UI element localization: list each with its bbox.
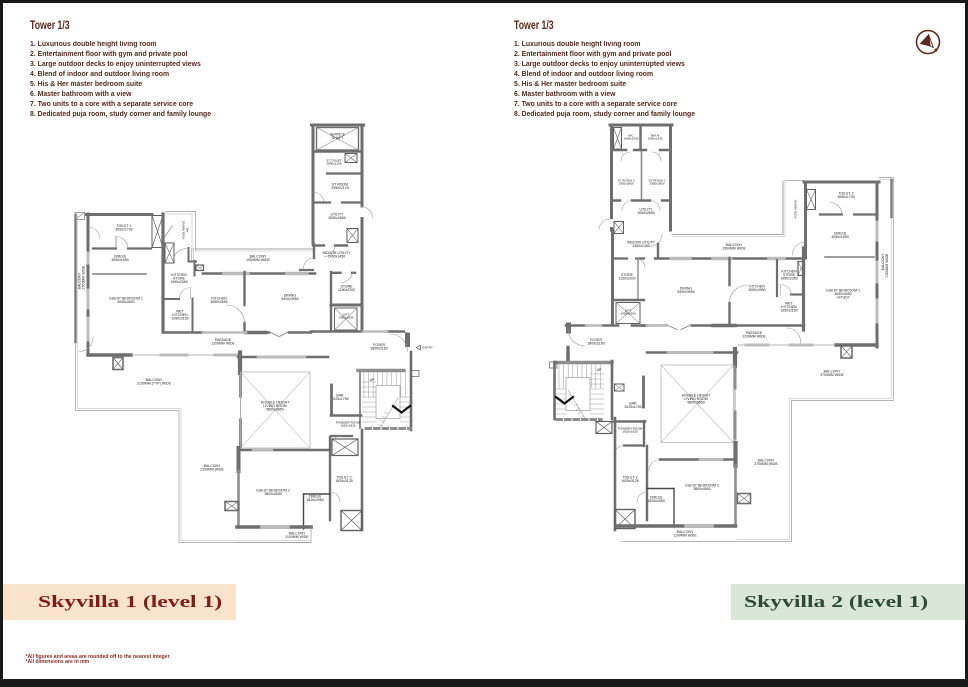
svg-text:UP: UP (597, 368, 603, 372)
svg-text:TOILET 21625x3125: TOILET 21625x3125 (621, 476, 638, 483)
svg-text:DRESS1825x2950: DRESS1825x2950 (647, 496, 664, 503)
svg-text:BALCONY2150MM WIDE: BALCONY2150MM WIDE (200, 464, 224, 471)
svg-text:DRESS4050x1950: DRESS4050x1950 (831, 232, 848, 239)
svg-text:WC1500x1425: WC1500x1425 (623, 134, 639, 141)
svg-text:BALCONY1500MM WIDE: BALCONY1500MM WIDE (246, 255, 270, 262)
svg-text:FOYER2800x2150: FOYER2800x2150 (587, 338, 604, 345)
svg-text:TOILET 23050x1700: TOILET 23050x1700 (837, 192, 854, 199)
svg-text:BALCONY1500MM WIDE: BALCONY1500MM WIDE (881, 253, 889, 277)
svg-text:DRESS1825x2950: DRESS1825x2950 (306, 495, 323, 502)
svg-text:DOUBLE HEIGHTLIVING ROOM5800x6: DOUBLE HEIGHTLIVING ROOM5800x6850 (261, 401, 290, 412)
svg-text:LIFT1950x1900: LIFT1950x1900 (620, 309, 636, 316)
svg-text:BAR2025x1750: BAR2025x1750 (331, 394, 348, 401)
svg-text:INDOOR UTILITY2450x1450: INDOOR UTILITY2450x1450 (322, 251, 351, 258)
svg-text:SERVICESHAFT: SERVICESHAFT (330, 133, 346, 140)
svg-text:STORE1150x2200: STORE1150x2200 (338, 285, 355, 292)
svg-text:FOYER2800x2150: FOYER2800x2150 (370, 343, 387, 350)
svg-text:POWDER ROOM1625x1825: POWDER ROOM1625x1825 (618, 427, 643, 434)
svg-text:UTILITY3050x2650: UTILITY3050x2650 (328, 213, 345, 220)
svg-text:BALCONY2150MM (TYP) WIDE: BALCONY2150MM (TYP) WIDE (137, 378, 172, 385)
svg-text:UP: UP (370, 378, 376, 382)
svg-text:GUEST BEDROOM 23800x4550: GUEST BEDROOM 23800x4550 (256, 489, 290, 496)
svg-text:VOID ABOVE: VOID ABOVE (794, 200, 798, 219)
svg-text:STORE1150x2200: STORE1150x2200 (618, 273, 635, 280)
svg-text:BAR2025x1750: BAR2025x1750 (624, 402, 641, 409)
svg-text:WETKITCHEN1950x2150: WETKITCHEN1950x2150 (171, 310, 188, 321)
svg-text:BALCONY3700MM WIDE: BALCONY3700MM WIDE (820, 370, 844, 377)
svg-text:WETKITCHEN1950x2150: WETKITCHEN1950x2150 (780, 302, 797, 313)
svg-text:BATH1900x1425: BATH1900x1425 (647, 134, 663, 141)
svg-text:BALCONY1500MM WIDE: BALCONY1500MM WIDE (78, 265, 86, 289)
svg-text:ST ROOM 11950x2850: ST ROOM 11950x2850 (649, 179, 666, 186)
svg-text:ENTRY: ENTRY (423, 346, 433, 350)
svg-text:KITCHENSTORE1950x2350: KITCHENSTORE1950x2350 (780, 270, 797, 281)
svg-text:GUEST BEDROOM 23800x4550: GUEST BEDROOM 23800x4550 (685, 484, 719, 491)
svg-text:DOUBLE HEIGHTLIVING ROOM5800x6: DOUBLE HEIGHTLIVING ROOM5800x6850 (682, 394, 711, 405)
svg-text:GUEST BEDROOM 14050x4950+STUDY: GUEST BEDROOM 14050x4950+STUDY (826, 289, 860, 300)
svg-text:POWDER ROOM1625x1825: POWDER ROOM1625x1825 (336, 421, 361, 428)
svg-text:DINING5400x3950: DINING5400x3950 (677, 287, 694, 294)
svg-text:GUEST BEDROOM 14050x4950: GUEST BEDROOM 14050x4950 (109, 297, 143, 304)
svg-text:BALCONY3700MM WIDE: BALCONY3700MM WIDE (754, 459, 778, 466)
svg-text:DINING5400x3950: DINING5400x3950 (281, 294, 298, 301)
svg-text:KITCHEN3050x3950: KITCHEN3050x3950 (210, 297, 227, 304)
svg-text:PASSAGE1200MM WIDE: PASSAGE1200MM WIDE (211, 338, 235, 345)
svg-text:BALCONY1100MM WIDE: BALCONY1100MM WIDE (285, 532, 309, 539)
svg-text:DRESS4050x1950: DRESS4050x1950 (111, 255, 128, 262)
svg-text:KITCHENSTORE1950x2350: KITCHENSTORE1950x2350 (170, 273, 187, 284)
svg-text:PASSAGE1200MM WIDE: PASSAGE1200MM WIDE (742, 331, 766, 338)
svg-text:BALCONY1500MM WIDE: BALCONY1500MM WIDE (722, 243, 746, 250)
svg-text:VOID ABOVEA/B: VOID ABOVEA/B (182, 221, 190, 240)
svg-text:ST TOILET1900x1200: ST TOILET1900x1200 (326, 159, 342, 166)
svg-text:TOILET 21625x3125: TOILET 21625x3125 (335, 476, 352, 483)
svg-text:KITCHEN3050x3950: KITCHEN3050x3950 (748, 285, 765, 292)
svg-text:TOILET 13050x1700: TOILET 13050x1700 (115, 224, 132, 231)
svg-text:BALCONY1100MM WIDE: BALCONY1100MM WIDE (673, 530, 697, 537)
svg-text:ST ROOM2950x2125: ST ROOM2950x2125 (331, 183, 348, 190)
svg-text:ST ROOM 21950x2850: ST ROOM 21950x2850 (618, 179, 635, 186)
svg-text:INDOOR UTILITY2450x1450: INDOOR UTILITY2450x1450 (627, 241, 656, 248)
svg-text:UTILITY3050x2650: UTILITY3050x2650 (637, 208, 654, 215)
